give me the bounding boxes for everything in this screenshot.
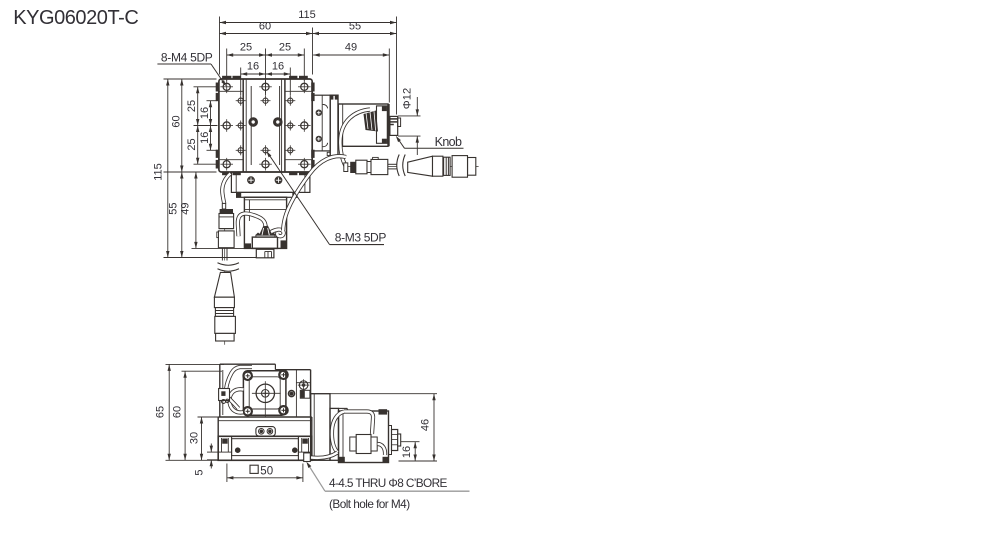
- svg-text:30: 30: [189, 432, 201, 444]
- svg-text:16: 16: [199, 132, 211, 144]
- svg-text:KYG06020T-C: KYG06020T-C: [13, 7, 138, 29]
- svg-text:55: 55: [168, 202, 180, 214]
- svg-text:5: 5: [193, 469, 205, 475]
- svg-text:8-M4 5DP: 8-M4 5DP: [161, 50, 213, 64]
- svg-text:50: 50: [260, 465, 273, 477]
- svg-text:16: 16: [199, 107, 211, 119]
- svg-text:25: 25: [240, 42, 252, 54]
- svg-text:60: 60: [259, 21, 271, 33]
- svg-text:46: 46: [420, 419, 432, 431]
- svg-text:49: 49: [180, 202, 192, 214]
- svg-text:115: 115: [298, 9, 316, 21]
- svg-text:(Bolt hole for M4): (Bolt hole for M4): [329, 497, 410, 511]
- svg-text:55: 55: [349, 21, 361, 33]
- svg-text:60: 60: [172, 406, 184, 418]
- svg-text:4-4.5 THRU Φ8 C’BORE: 4-4.5 THRU Φ8 C’BORE: [329, 476, 448, 490]
- svg-text:Φ12: Φ12: [402, 88, 414, 109]
- svg-text:8-M3 5DP: 8-M3 5DP: [335, 230, 387, 244]
- svg-text:25: 25: [186, 100, 198, 112]
- svg-text:60: 60: [171, 115, 183, 127]
- svg-text:16: 16: [401, 446, 413, 458]
- svg-text:16: 16: [272, 61, 284, 73]
- svg-text:25: 25: [279, 42, 291, 54]
- svg-text:115: 115: [152, 163, 164, 181]
- svg-text:25: 25: [186, 138, 198, 150]
- svg-text:16: 16: [247, 61, 259, 73]
- svg-text:Knob: Knob: [435, 135, 462, 149]
- svg-text:49: 49: [345, 42, 357, 54]
- svg-text:65: 65: [155, 406, 167, 418]
